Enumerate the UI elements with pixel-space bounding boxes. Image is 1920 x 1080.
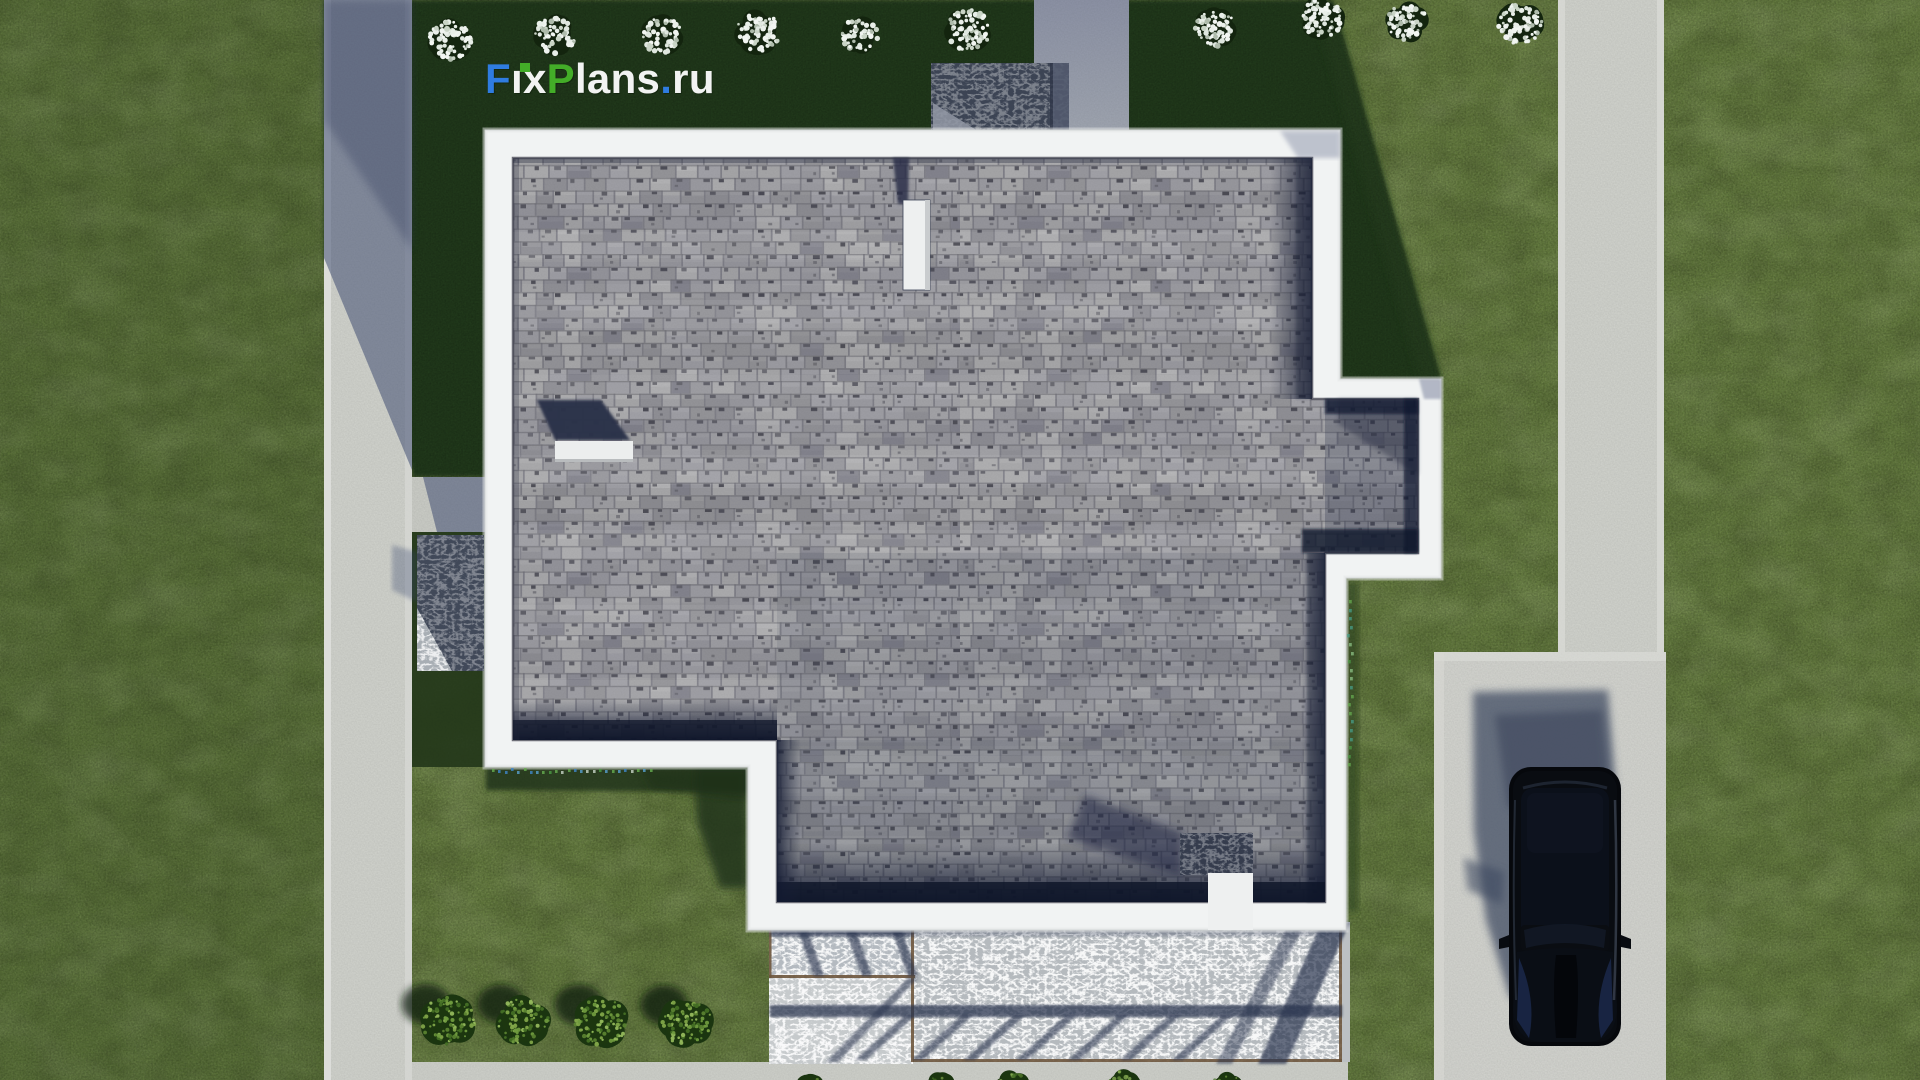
svg-text:FıxPlans.ru: FıxPlans.ru xyxy=(485,55,715,102)
